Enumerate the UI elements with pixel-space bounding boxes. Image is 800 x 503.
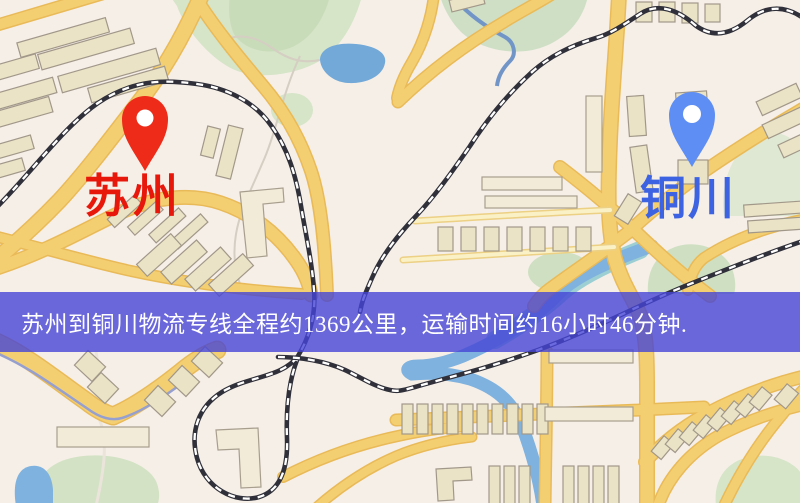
- map-canvas[interactable]: [0, 0, 800, 503]
- origin-city-label: 苏州: [84, 174, 180, 220]
- route-info-text: 苏州到铜川物流专线全程约1369公里，运输时间约16小时46分钟.: [0, 305, 687, 339]
- info-banner: 苏州到铜川物流专线全程约1369公里，运输时间约16小时46分钟.: [0, 292, 800, 352]
- map-screenshot: 苏州 铜川 苏州到铜川物流专线全程约1369公里，运输时间约16小时46分钟.: [0, 0, 800, 503]
- destination-city-label: 铜川: [640, 176, 736, 222]
